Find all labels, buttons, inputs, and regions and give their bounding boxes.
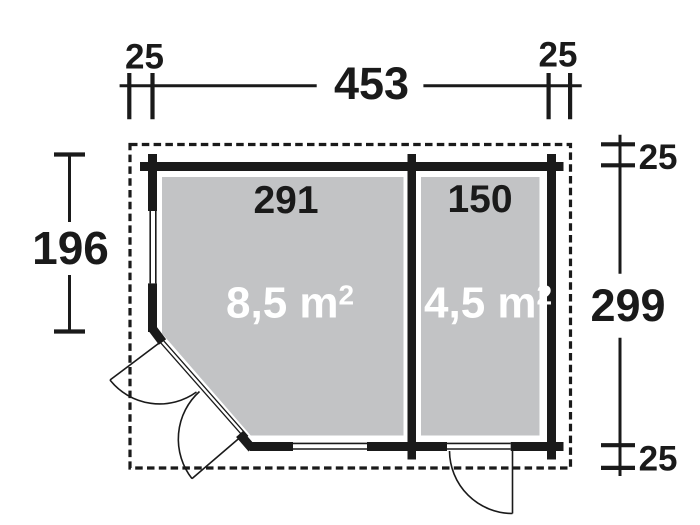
svg-text:150: 150: [447, 178, 512, 221]
svg-text:299: 299: [590, 280, 665, 331]
svg-text:8,5 m2: 8,5 m2: [226, 279, 354, 328]
svg-text:25: 25: [125, 38, 164, 77]
svg-text:25: 25: [539, 36, 578, 75]
svg-text:25: 25: [639, 440, 678, 479]
svg-text:4,5 m2: 4,5 m2: [424, 279, 552, 328]
svg-text:453: 453: [334, 58, 409, 109]
svg-text:291: 291: [253, 179, 318, 222]
svg-text:196: 196: [32, 222, 109, 274]
svg-text:25: 25: [639, 138, 678, 177]
